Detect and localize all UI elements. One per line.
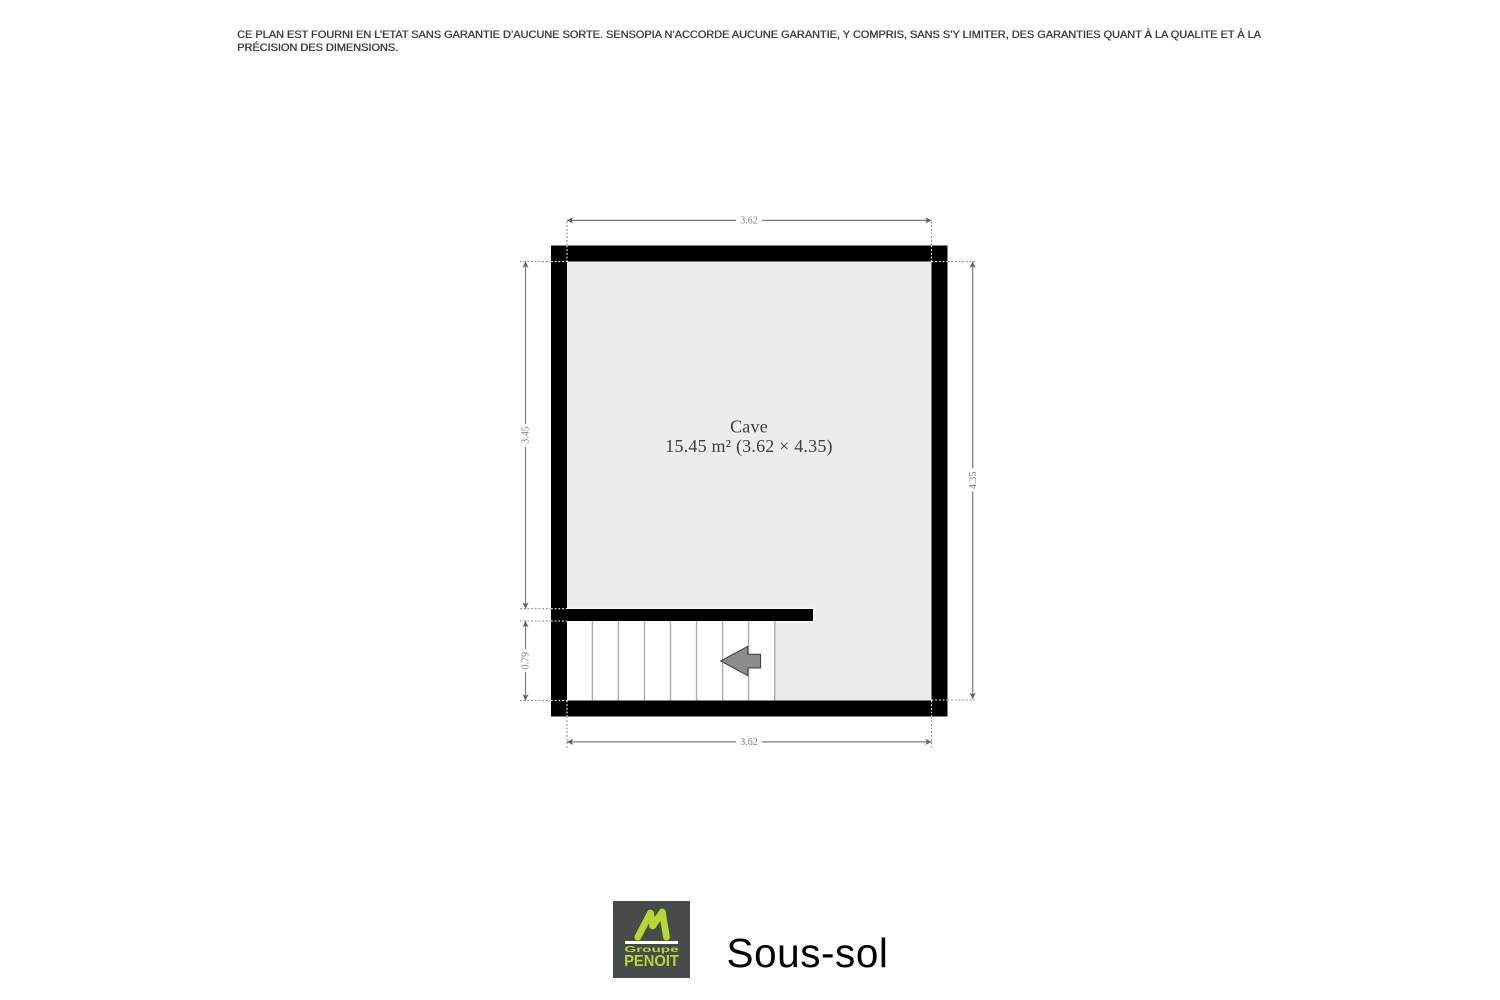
svg-text:3.45: 3.45 [521,426,532,444]
svg-text:4.35: 4.35 [968,472,979,490]
svg-text:0.79: 0.79 [521,652,532,670]
svg-text:3.62: 3.62 [740,216,758,227]
svg-text:15.45 m² (3.62 × 4.35): 15.45 m² (3.62 × 4.35) [665,436,832,457]
svg-text:3.62: 3.62 [740,737,758,748]
svg-text:Cave: Cave [730,417,768,437]
